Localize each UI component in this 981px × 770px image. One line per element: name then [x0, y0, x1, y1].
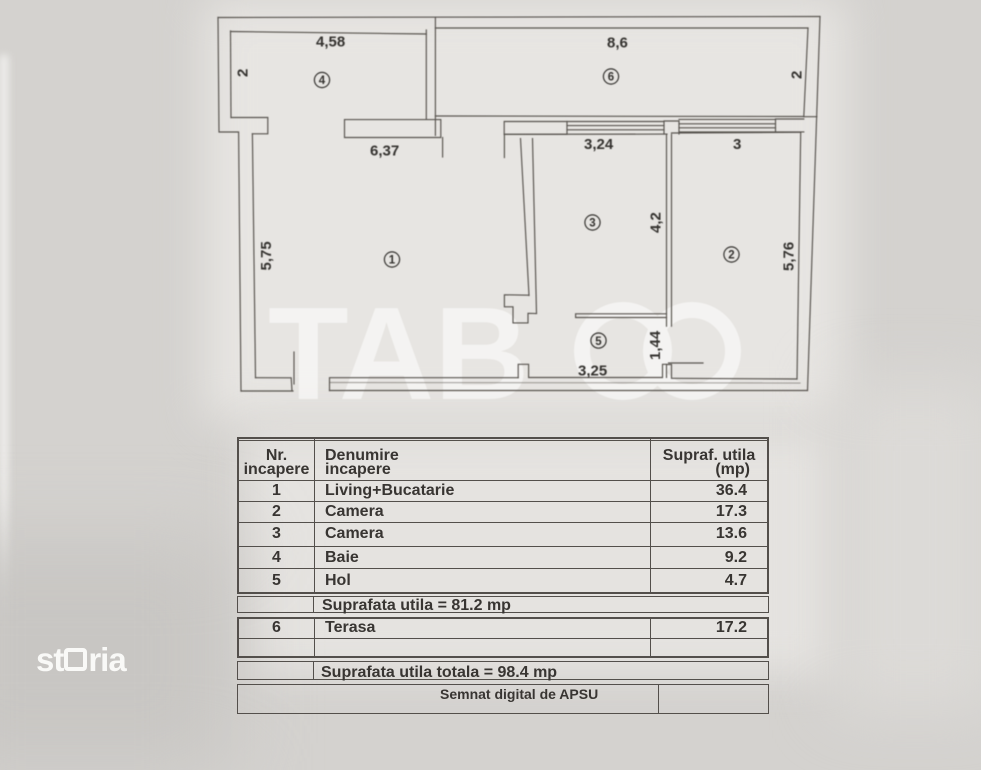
svg-text:TAB: TAB	[268, 280, 530, 427]
svg-text:2: 2	[728, 250, 734, 262]
svg-text:8,6: 8,6	[607, 35, 628, 52]
svg-text:3: 3	[589, 218, 595, 230]
svg-text:1: 1	[389, 255, 396, 267]
svg-text:3,24: 3,24	[584, 136, 614, 153]
svg-text:6: 6	[608, 72, 614, 84]
svg-text:5: 5	[595, 336, 602, 348]
svg-text:4,2: 4,2	[648, 212, 665, 233]
svg-text:4: 4	[319, 75, 326, 87]
svg-text:5,75: 5,75	[258, 241, 275, 270]
svg-text:6,37: 6,37	[370, 143, 399, 160]
svg-text:5,76: 5,76	[781, 242, 798, 271]
svg-text:4,58: 4,58	[316, 34, 345, 51]
svg-text:2: 2	[789, 71, 806, 79]
svg-text:1,44: 1,44	[647, 330, 664, 360]
svg-text:3: 3	[733, 136, 741, 153]
svg-text:2: 2	[235, 69, 252, 77]
svg-text:3,25: 3,25	[578, 363, 607, 380]
